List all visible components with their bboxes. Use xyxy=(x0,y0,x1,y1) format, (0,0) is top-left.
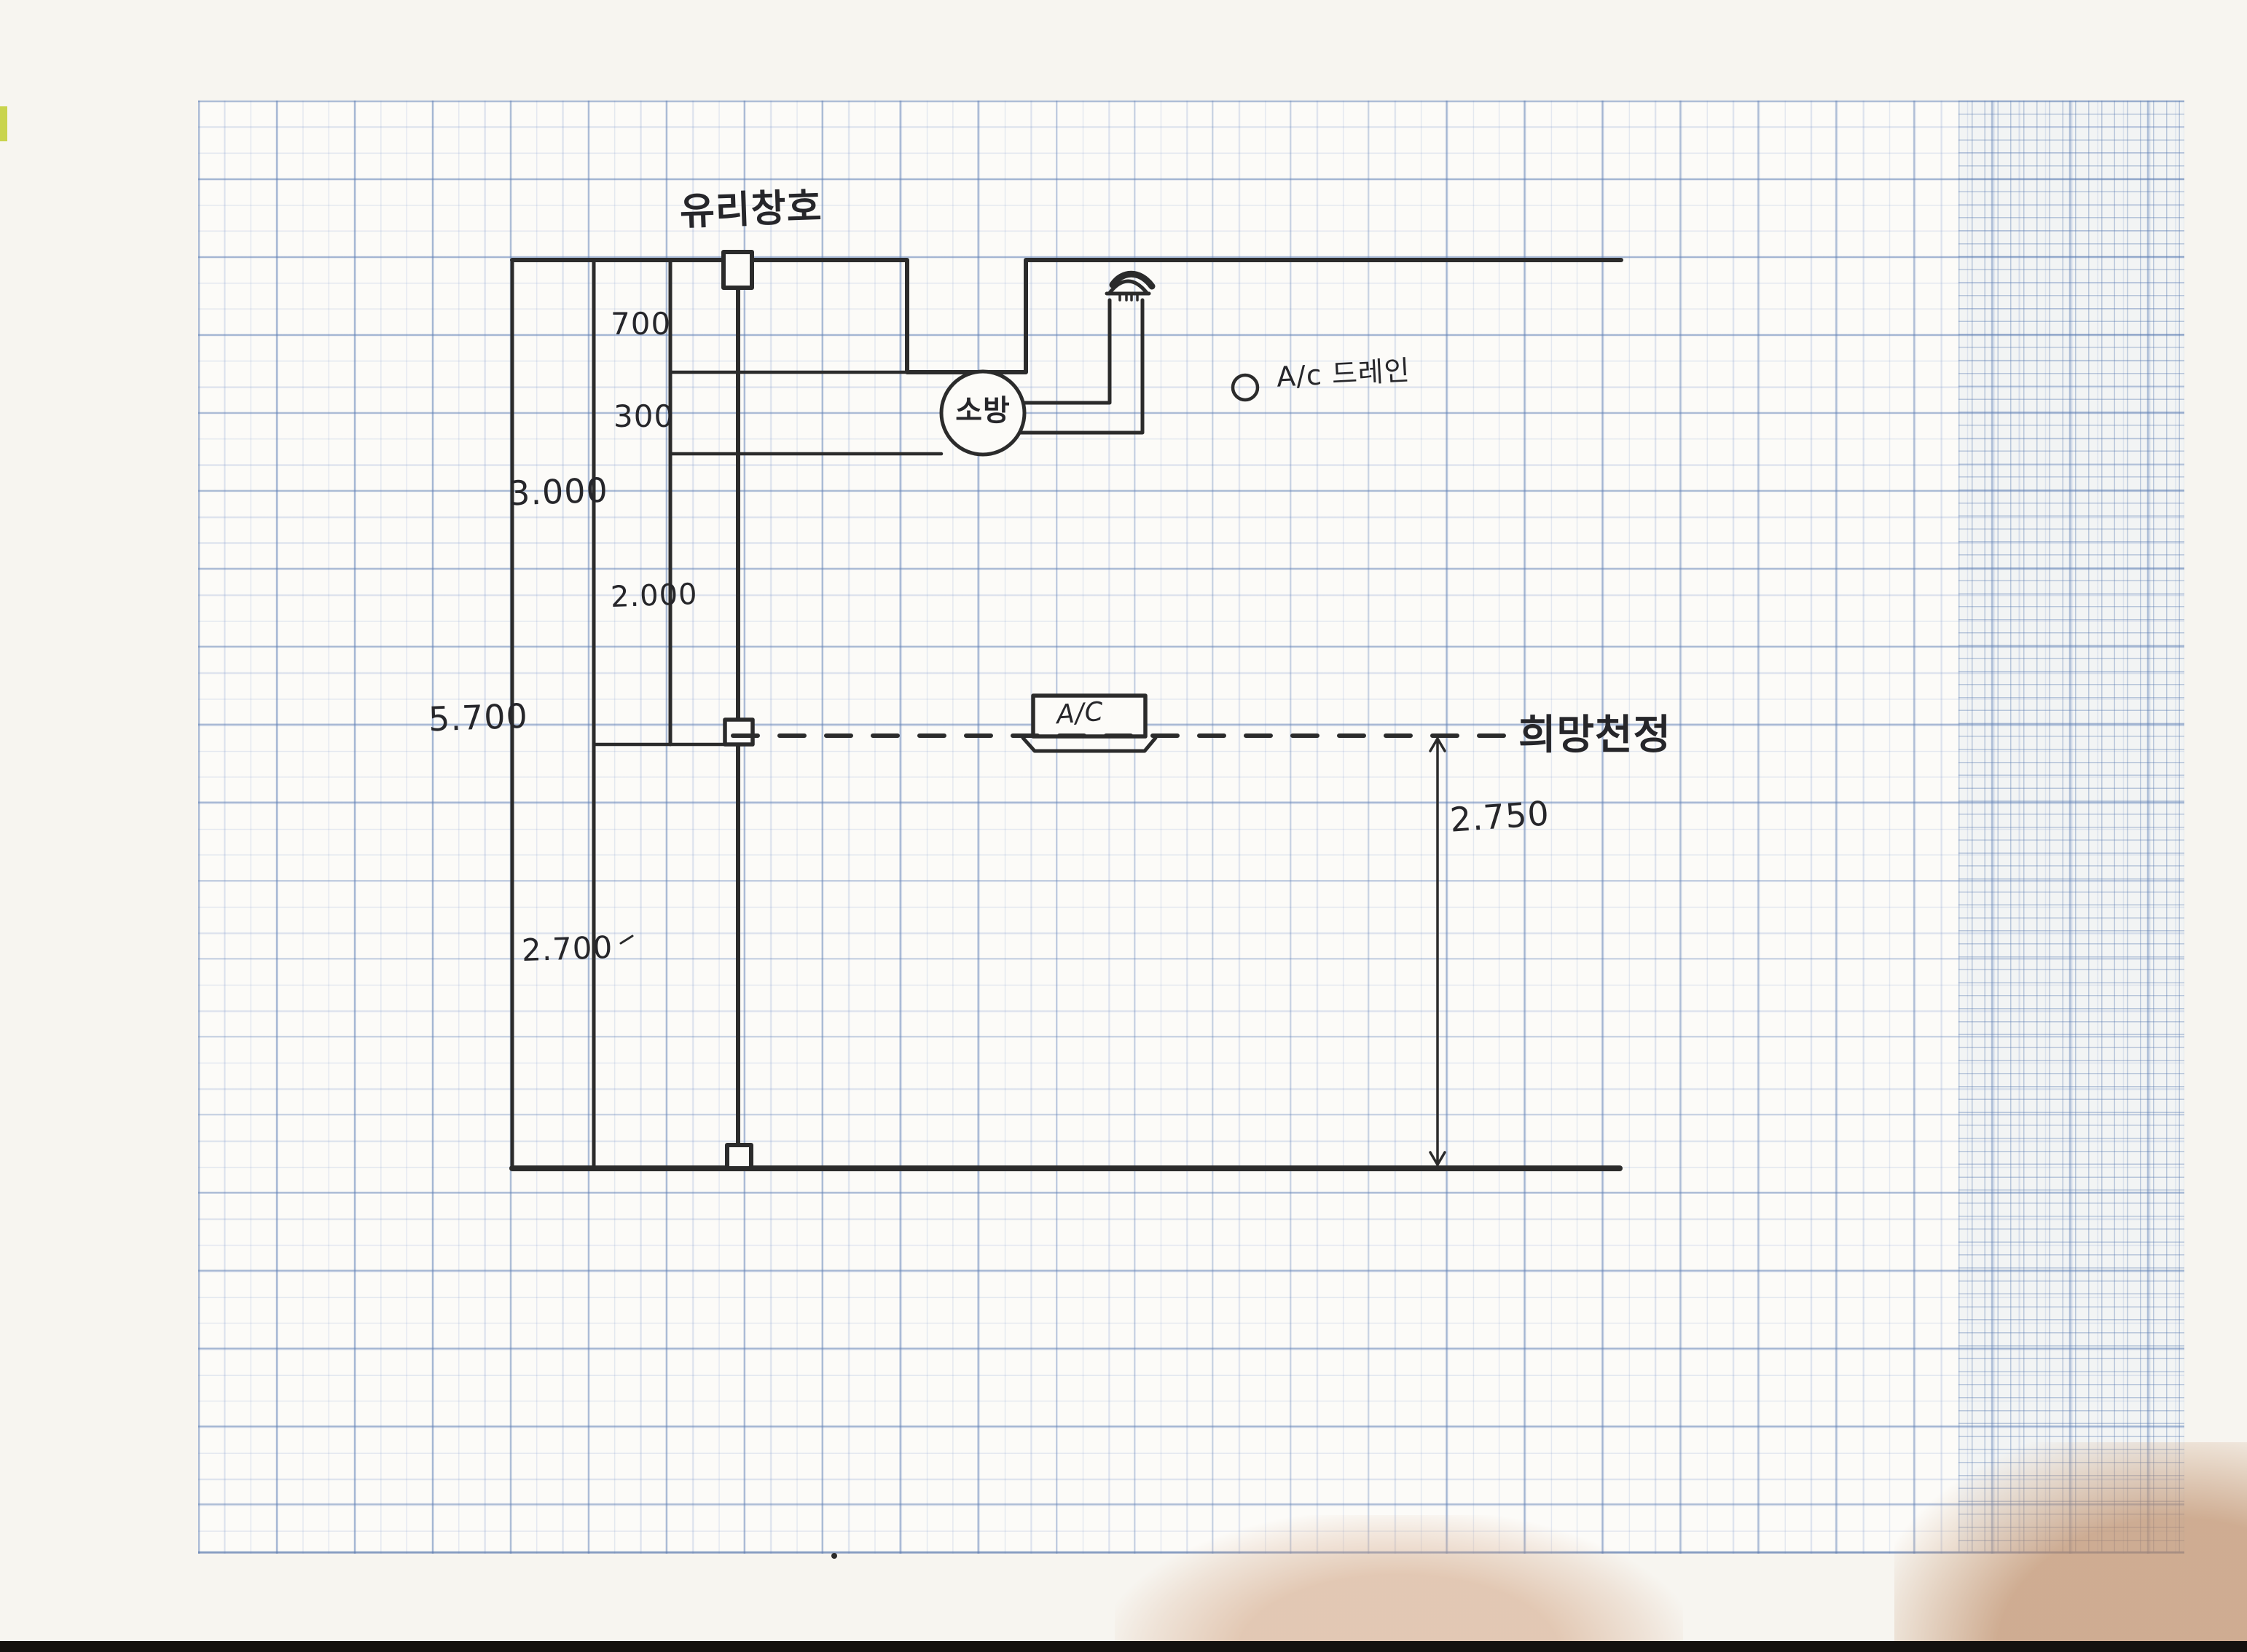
dim-5700-label: 5.700 xyxy=(428,699,528,736)
dim-3000-label: 3.000 xyxy=(508,473,608,511)
window-joint-bottom xyxy=(727,1145,751,1168)
dim-2000-label: 2.000 xyxy=(610,580,698,612)
dim-300-label: 300 xyxy=(613,401,674,432)
window-joint-top xyxy=(723,252,752,288)
scanned-page: 유리창호 700 300 3.000 2.000 5.700 2.700 소방 … xyxy=(0,0,2247,1652)
ceiling-height-arrow xyxy=(1430,739,1445,1165)
ac-unit-label: A/C xyxy=(1056,699,1105,728)
stray-mark xyxy=(621,936,632,943)
desired-ceiling-label: 희망천정 xyxy=(1518,715,1671,756)
dim-2750-label: 2.750 xyxy=(1449,796,1551,836)
ac-drain-label: A/c 드레인 xyxy=(1276,356,1411,391)
top-wall-line xyxy=(512,260,1621,372)
dim-2700-label: 2.700 xyxy=(521,932,613,966)
pencil-sketch-layer xyxy=(0,0,2247,1652)
window-joint-middle xyxy=(725,720,753,744)
stray-dot xyxy=(831,1553,837,1559)
ac-drain-circle xyxy=(1233,375,1258,400)
glass-window-label: 유리창호 xyxy=(679,189,823,232)
sprinkler-pipe xyxy=(1019,300,1142,433)
dim-700-label: 700 xyxy=(611,309,671,339)
fire-symbol-label: 소방 xyxy=(943,396,1023,425)
scan-edge-black-bar xyxy=(0,1641,2247,1652)
ac-unit-flange xyxy=(1023,738,1156,751)
